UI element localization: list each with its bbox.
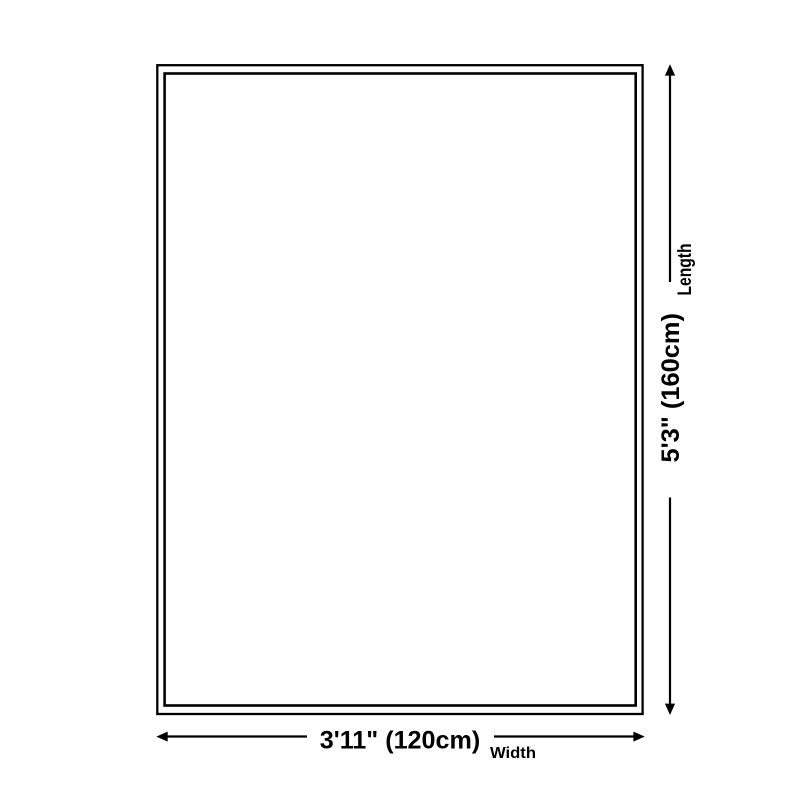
svg-text:5'3" (160cm): 5'3" (160cm) [657, 313, 685, 463]
svg-text:Length: Length [675, 244, 696, 296]
svg-text:Width: Width [490, 745, 536, 762]
svg-text:3'11" (120cm): 3'11" (120cm) [320, 726, 481, 754]
